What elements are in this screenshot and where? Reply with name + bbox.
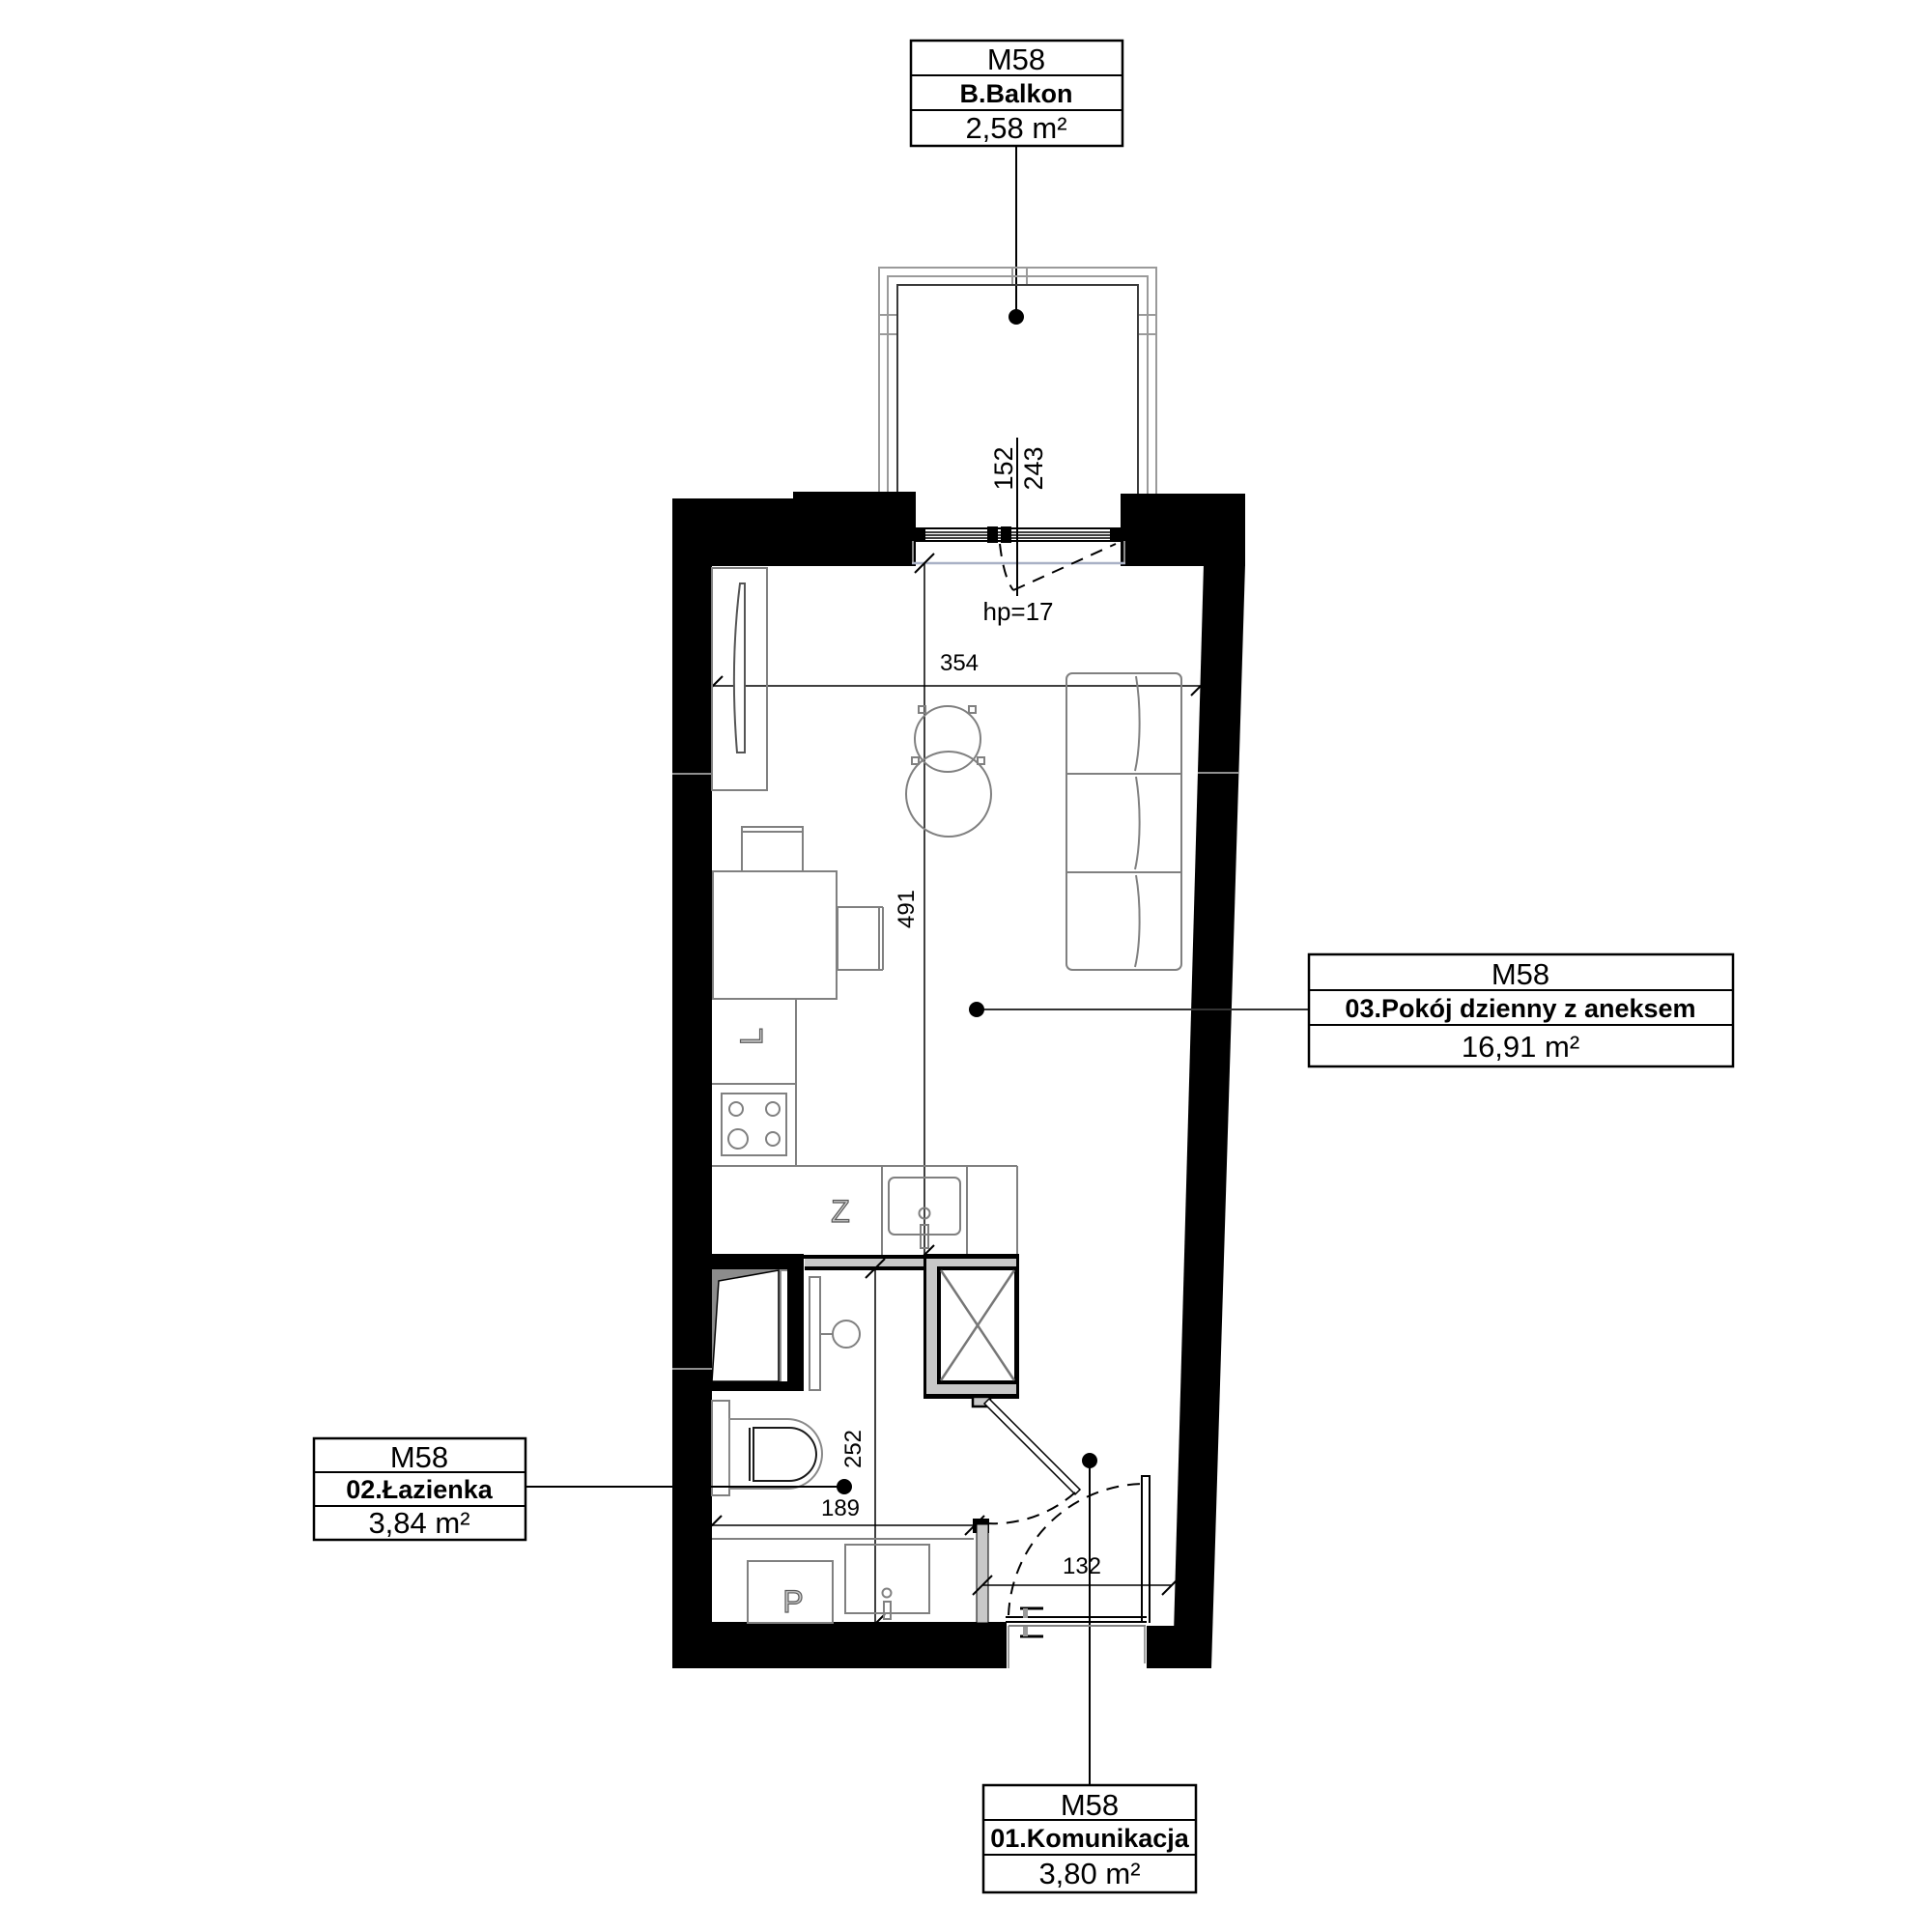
svg-text:hp=17: hp=17 bbox=[982, 597, 1053, 626]
svg-text:B.Balkon: B.Balkon bbox=[959, 79, 1072, 108]
svg-text:354: 354 bbox=[940, 650, 979, 676]
svg-text:M58: M58 bbox=[390, 1440, 448, 1474]
svg-text:491: 491 bbox=[894, 890, 920, 928]
svg-text:Z: Z bbox=[831, 1194, 850, 1229]
svg-text:132: 132 bbox=[1063, 1553, 1101, 1579]
svg-text:3,84 m²: 3,84 m² bbox=[368, 1506, 469, 1540]
svg-text:01.Komunikacja: 01.Komunikacja bbox=[990, 1824, 1190, 1853]
svg-text:M58: M58 bbox=[987, 43, 1045, 76]
svg-text:3,80 m²: 3,80 m² bbox=[1038, 1857, 1140, 1890]
svg-text:02.Łazienka: 02.Łazienka bbox=[346, 1475, 494, 1504]
svg-text:189: 189 bbox=[821, 1495, 860, 1521]
svg-text:P: P bbox=[782, 1584, 803, 1619]
svg-text:2,58 m²: 2,58 m² bbox=[965, 111, 1066, 145]
svg-text:152: 152 bbox=[989, 446, 1018, 490]
svg-text:L: L bbox=[734, 1028, 769, 1045]
svg-text:243: 243 bbox=[1019, 446, 1048, 490]
svg-text:M58: M58 bbox=[1061, 1788, 1119, 1822]
svg-text:03.Pokój dzienny z aneksem: 03.Pokój dzienny z aneksem bbox=[1345, 994, 1695, 1023]
svg-text:16,91 m²: 16,91 m² bbox=[1462, 1030, 1579, 1064]
svg-text:M58: M58 bbox=[1492, 957, 1549, 991]
svg-text:252: 252 bbox=[840, 1430, 867, 1468]
